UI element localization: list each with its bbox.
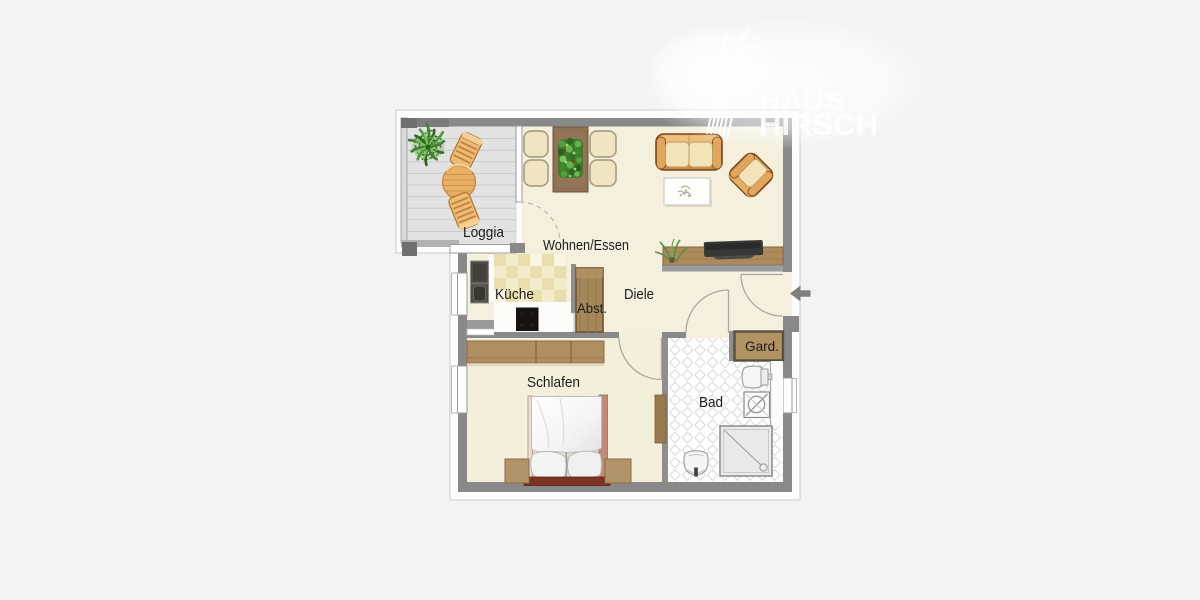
svg-text:Küche: Küche (495, 286, 534, 303)
svg-text:Loggia: Loggia (463, 224, 505, 241)
svg-text:Wohnen/Essen: Wohnen/Essen (543, 237, 629, 254)
svg-text:HIRSCH: HIRSCH (759, 109, 878, 142)
svg-text:Schlafen: Schlafen (527, 374, 580, 391)
svg-text:Gard.: Gard. (745, 338, 779, 354)
svg-text:Diele: Diele (624, 286, 654, 303)
svg-text:Abst.: Abst. (577, 300, 607, 316)
svg-text:Bad: Bad (699, 394, 723, 411)
